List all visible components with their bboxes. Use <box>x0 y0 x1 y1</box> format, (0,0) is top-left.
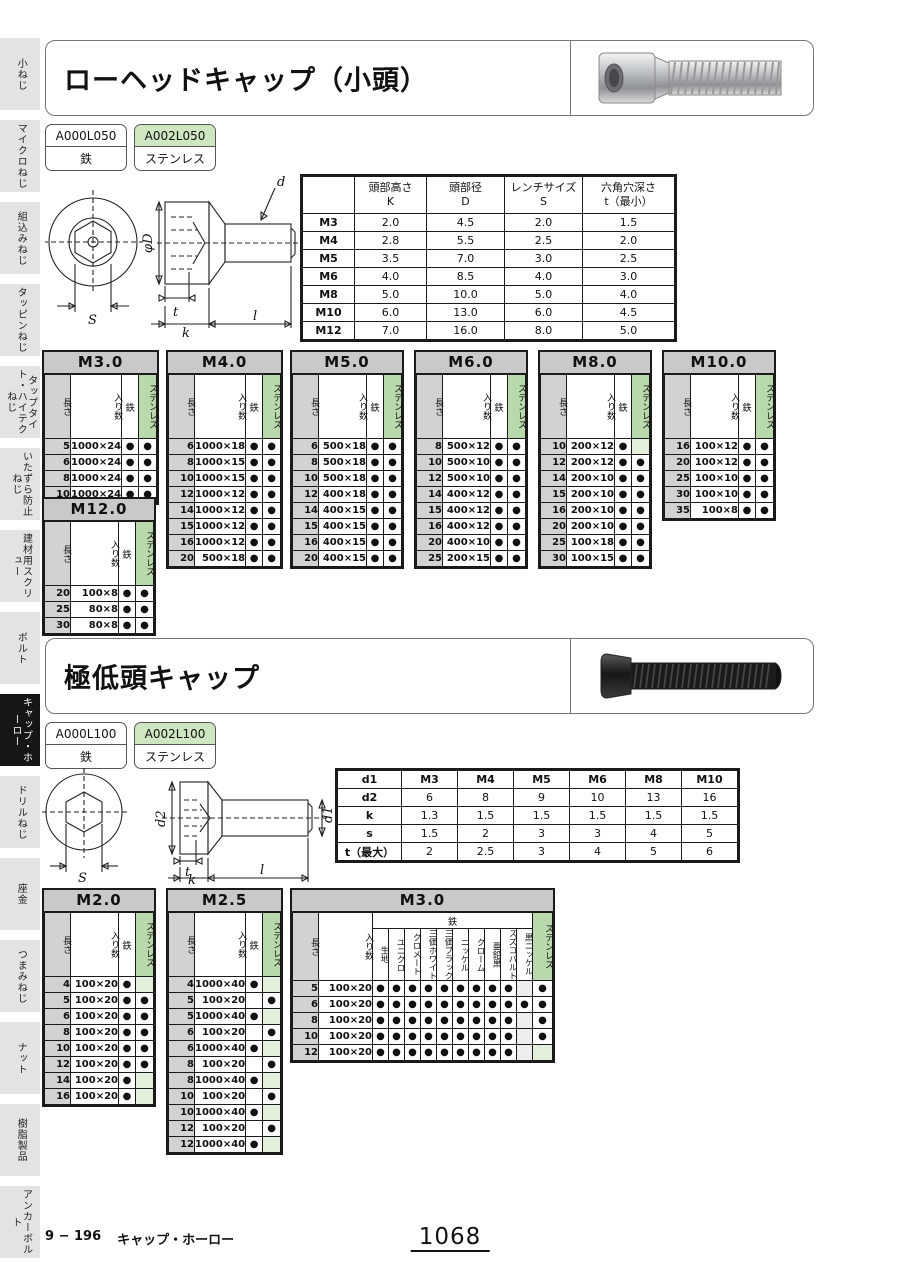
table-row: 12400×18●● <box>293 487 402 503</box>
stainless-availability-cell: ● <box>508 535 526 551</box>
table-row: 35100×8●● <box>665 503 774 519</box>
dim-cell: d1 <box>338 771 402 789</box>
iron-header: 鉄 <box>122 375 139 439</box>
size-table-m6: M6.0長さ入り数鉄ステンレス8500×12●●10500×10●●12500×… <box>414 350 528 569</box>
length-cell: 10 <box>293 1029 319 1045</box>
iron-availability-cell: ● <box>373 997 389 1013</box>
sidebar-item: いたずら防止ねじ <box>0 448 40 520</box>
qty-cell: 100×18 <box>567 535 615 551</box>
iron-availability-cell <box>246 1089 263 1105</box>
sidebar-item: マイクロねじ <box>0 120 40 192</box>
length-cell: 6 <box>169 439 195 455</box>
size-table-grid: 長さ入り数鉄ステンレス41000×40●5100×20●51000×40●610… <box>168 912 281 1153</box>
section2-title: 極低頭キャップ <box>64 657 260 696</box>
iron-availability-cell: ● <box>246 519 263 535</box>
dim-cell: M6 <box>303 268 355 286</box>
iron-finish-header: 生地 <box>373 929 389 981</box>
size-table-m4: M4.0長さ入り数鉄ステンレス61000×18●●81000×15●●10100… <box>166 350 283 569</box>
stainless-availability-cell: ● <box>508 487 526 503</box>
dim-cell: 2 <box>402 843 458 861</box>
iron-availability-cell: ● <box>389 981 405 997</box>
dim-cell: M8 <box>626 771 682 789</box>
dim-cell: 3 <box>514 825 570 843</box>
label-k: k <box>188 873 196 884</box>
size-header-row: 長さ入り数鉄ステンレス <box>293 375 402 439</box>
iron-availability-cell: ● <box>246 551 263 567</box>
dim-cell: s <box>338 825 402 843</box>
stainless-availability-cell: ● <box>263 535 281 551</box>
iron-availability-cell: ● <box>421 1029 437 1045</box>
material-label: ステンレス <box>135 147 215 170</box>
dimension-table-grid: d1M3M4M5M6M8M10d2689101316k1.31.51.51.51… <box>337 770 738 861</box>
iron-header: 鉄 <box>367 375 384 439</box>
table-row: 20100×8●● <box>45 586 154 602</box>
stainless-availability-cell: ● <box>508 439 526 455</box>
qty-cell: 1000×40 <box>195 1137 246 1153</box>
stainless-availability-cell: ● <box>508 519 526 535</box>
qty-cell: 200×15 <box>443 551 491 567</box>
iron-finish-header: 三価ホワイト <box>421 929 437 981</box>
iron-availability-cell: ● <box>119 586 136 602</box>
dim-row: M106.013.06.04.5 <box>303 304 675 322</box>
qty-cell: 100×10 <box>691 487 739 503</box>
qty-cell: 100×20 <box>319 1029 373 1045</box>
iron-availability-cell: ● <box>615 471 632 487</box>
qty-cell: 1000×24 <box>71 471 122 487</box>
section1-codes: A000L050 鉄 A002L050 ステンレス <box>45 124 216 171</box>
stainless-availability-cell: ● <box>508 455 526 471</box>
dim-cell: 3.0 <box>505 250 583 268</box>
stainless-availability-cell: ● <box>632 535 650 551</box>
sidebar-item-label: ナット <box>15 1042 26 1075</box>
label-t: t <box>173 305 179 320</box>
dim-cell: 10.0 <box>427 286 505 304</box>
qty-cell: 500×10 <box>443 471 491 487</box>
iron-availability-cell: ● <box>485 1045 501 1061</box>
iron-availability-cell: ● <box>491 455 508 471</box>
dim-row: d1M3M4M5M6M8M10 <box>338 771 738 789</box>
size-table-title: M2.0 <box>44 890 154 912</box>
qty-cell: 500×10 <box>443 455 491 471</box>
length-cell: 6 <box>293 439 319 455</box>
length-cell: 10 <box>169 1105 195 1121</box>
table-row: 12100×20● <box>169 1121 281 1137</box>
qty-cell: 100×20 <box>195 1057 246 1073</box>
qty-cell: 100×10 <box>691 471 739 487</box>
qty-cell: 400×15 <box>319 503 367 519</box>
stainless-availability-cell: ● <box>533 997 553 1013</box>
length-cell: 8 <box>293 1013 319 1029</box>
iron-availability-cell: ● <box>615 487 632 503</box>
table-row: 10100×20●● <box>45 1041 154 1057</box>
qty-header: 入り数 <box>195 375 246 439</box>
sidebar-item-label: 座金 <box>15 883 26 905</box>
dim-cell: 1.5 <box>682 807 738 825</box>
table-row: 30100×10●● <box>665 487 774 503</box>
iron-availability-cell: ● <box>485 997 501 1013</box>
sidebar-item: ナット <box>0 1022 40 1094</box>
section2-codes: A000L100 鉄 A002L100 ステンレス <box>45 722 216 769</box>
stainless-availability-cell: ● <box>136 1025 154 1041</box>
length-cell: 16 <box>45 1089 71 1105</box>
stainless-availability-cell: ● <box>139 439 157 455</box>
length-cell: 15 <box>293 519 319 535</box>
length-cell: 8 <box>45 1025 71 1041</box>
length-cell: 10 <box>169 471 195 487</box>
stainless-availability-cell <box>263 1041 281 1057</box>
stainless-availability-cell: ● <box>384 471 402 487</box>
section2-title-box: 極低頭キャップ <box>45 638 814 714</box>
table-row: 8100×20●●●●●●●●●● <box>293 1013 553 1029</box>
iron-availability-cell: ● <box>739 471 756 487</box>
label-l: l <box>260 863 264 878</box>
dim-header-cell: 六角穴深さt（最小） <box>583 177 675 214</box>
iron-header: 鉄 <box>491 375 508 439</box>
iron-availability-cell: ● <box>739 455 756 471</box>
table-row: 51000×40● <box>169 1009 281 1025</box>
iron-availability-cell: ● <box>501 1013 517 1029</box>
code-label: A002L050 <box>135 125 215 147</box>
sidebar-item: つまみねじ <box>0 940 40 1012</box>
dim-cell: M4 <box>303 232 355 250</box>
dim-cell: 4 <box>626 825 682 843</box>
iron-availability-cell: ● <box>517 997 533 1013</box>
length-cell: 14 <box>169 503 195 519</box>
length-cell: 6 <box>45 1009 71 1025</box>
iron-header: 鉄 <box>246 375 263 439</box>
size-header-row: 長さ入り数鉄ステンレス <box>293 913 553 929</box>
stainless-header: ステンレス <box>139 375 157 439</box>
stainless-availability-cell: ● <box>263 1121 281 1137</box>
stainless-availability-cell: ● <box>508 503 526 519</box>
stainless-header: ステンレス <box>533 913 553 981</box>
table-row: 6100×20● <box>169 1025 281 1041</box>
dim-row: M127.016.08.05.0 <box>303 322 675 340</box>
length-cell: 8 <box>417 439 443 455</box>
iron-availability-cell: ● <box>373 1045 389 1061</box>
label-k: k <box>182 326 190 338</box>
length-cell: 12 <box>169 487 195 503</box>
iron-availability-cell: ● <box>367 487 384 503</box>
qty-cell: 100×20 <box>71 1025 119 1041</box>
length-cell: 6 <box>169 1041 195 1057</box>
iron-availability-cell: ● <box>405 981 421 997</box>
qty-cell: 400×12 <box>443 503 491 519</box>
table-row: 16100×12●● <box>665 439 774 455</box>
size-table-title: M2.5 <box>168 890 281 912</box>
material-label: 鉄 <box>46 147 126 170</box>
iron-availability-cell: ● <box>367 471 384 487</box>
iron-availability-cell: ● <box>739 503 756 519</box>
size-table-m10: M10.0長さ入り数鉄ステンレス16100×12●●20100×12●●2510… <box>662 350 776 521</box>
iron-availability-cell: ● <box>485 981 501 997</box>
length-cell: 12 <box>169 1121 195 1137</box>
table-row: 16100×20● <box>45 1089 154 1105</box>
material-label: 鉄 <box>46 745 126 768</box>
length-cell: 5 <box>169 1009 195 1025</box>
qty-cell: 100×20 <box>71 1057 119 1073</box>
dim-cell: 5 <box>626 843 682 861</box>
iron-availability-cell: ● <box>615 439 632 455</box>
iron-availability-cell: ● <box>119 1057 136 1073</box>
stainless-availability-cell: ● <box>263 487 281 503</box>
table-row: 10100×20● <box>169 1089 281 1105</box>
sidebar-item-label: キャップ・ホーロー <box>10 694 31 766</box>
qty-cell: 100×20 <box>71 993 119 1009</box>
qty-cell: 100×20 <box>195 1025 246 1041</box>
stainless-availability-cell: ● <box>139 471 157 487</box>
table-row: 12100×20●● <box>45 1057 154 1073</box>
iron-availability-cell: ● <box>367 535 384 551</box>
iron-availability-cell: ● <box>615 455 632 471</box>
length-cell: 14 <box>293 503 319 519</box>
sidebar-item-label: 小ねじ <box>15 58 26 91</box>
stainless-availability-cell <box>263 1105 281 1121</box>
length-cell: 16 <box>293 535 319 551</box>
length-cell: 20 <box>45 586 71 602</box>
table-row: 14400×15●● <box>293 503 402 519</box>
stainless-availability-cell: ● <box>136 618 154 634</box>
stainless-availability-cell: ● <box>139 455 157 471</box>
iron-availability-cell: ● <box>367 455 384 471</box>
dim-cell: 6 <box>682 843 738 861</box>
iron-availability-cell: ● <box>122 455 139 471</box>
iron-availability-cell: ● <box>246 977 263 993</box>
length-header: 長さ <box>417 375 443 439</box>
size-table-m5: M5.0長さ入り数鉄ステンレス6500×18●●8500×18●●10500×1… <box>290 350 404 569</box>
stainless-availability-cell: ● <box>136 586 154 602</box>
table-row: 121000×12●● <box>169 487 281 503</box>
dim-cell: 3 <box>570 825 626 843</box>
length-cell: 14 <box>541 471 567 487</box>
table-row: 20400×10●● <box>417 535 526 551</box>
iron-availability-cell: ● <box>389 1045 405 1061</box>
size-header-row: 長さ入り数鉄ステンレス <box>665 375 774 439</box>
length-cell: 14 <box>45 1073 71 1089</box>
table-row: 161000×12●● <box>169 535 281 551</box>
iron-availability-cell: ● <box>367 551 384 567</box>
iron-availability-cell <box>517 1045 533 1061</box>
size-table-title: M8.0 <box>540 352 650 374</box>
iron-availability-cell: ● <box>246 1073 263 1089</box>
dim-row: t（最大）22.53456 <box>338 843 738 861</box>
table-row: 10200×12● <box>541 439 650 455</box>
stainless-availability-cell: ● <box>756 487 774 503</box>
qty-cell: 400×18 <box>319 487 367 503</box>
table-row: 20100×12●● <box>665 455 774 471</box>
iron-availability-cell: ● <box>469 981 485 997</box>
sidebar-item-label: 樹脂製品 <box>15 1118 26 1162</box>
table-row: 61000×40● <box>169 1041 281 1057</box>
length-cell: 4 <box>169 977 195 993</box>
dim-row: M42.85.52.52.0 <box>303 232 675 250</box>
product-photo-black-cap-screw <box>597 650 787 702</box>
label-phiD: φD <box>141 233 156 253</box>
size-table-grid: 長さ入り数鉄ステンレス16100×12●●20100×12●●25100×10●… <box>664 374 774 519</box>
code-label: A000L100 <box>46 723 126 745</box>
stainless-availability-cell <box>533 1045 553 1061</box>
iron-availability-cell: ● <box>453 1013 469 1029</box>
dim-header-cell <box>303 177 355 214</box>
stainless-header: ステンレス <box>632 375 650 439</box>
table-row: 12100×20●●●●●●●●● <box>293 1045 553 1061</box>
qty-header: 入り数 <box>567 375 615 439</box>
table-row: 14200×10●● <box>541 471 650 487</box>
iron-availability-cell: ● <box>246 471 263 487</box>
iron-availability-cell: ● <box>119 1073 136 1089</box>
qty-cell: 1000×40 <box>195 1009 246 1025</box>
qty-cell: 400×15 <box>319 519 367 535</box>
stainless-availability-cell: ● <box>384 503 402 519</box>
iron-availability-cell <box>246 1025 263 1041</box>
length-cell: 16 <box>417 519 443 535</box>
table-row: 20400×15●● <box>293 551 402 567</box>
qty-cell: 400×12 <box>443 519 491 535</box>
length-cell: 14 <box>417 487 443 503</box>
dim-cell: 10 <box>570 789 626 807</box>
length-cell: 30 <box>45 618 71 634</box>
length-cell: 4 <box>45 977 71 993</box>
dim-cell: 4.0 <box>583 286 675 304</box>
iron-availability-cell: ● <box>437 1029 453 1045</box>
iron-availability-cell: ● <box>437 1045 453 1061</box>
length-cell: 6 <box>169 1025 195 1041</box>
stainless-availability-cell <box>263 1009 281 1025</box>
iron-availability-cell: ● <box>453 1045 469 1061</box>
iron-availability-cell: ● <box>491 535 508 551</box>
table-row: 6100×20●● <box>45 1009 154 1025</box>
dim-cell: 6.0 <box>505 304 583 322</box>
length-cell: 16 <box>665 439 691 455</box>
stainless-availability-cell: ● <box>136 1057 154 1073</box>
table-row: 3080×8●● <box>45 618 154 634</box>
length-cell: 25 <box>665 471 691 487</box>
table-row: 25100×18●● <box>541 535 650 551</box>
qty-cell: 100×20 <box>319 981 373 997</box>
table-row: 8500×12●● <box>417 439 526 455</box>
iron-availability-cell: ● <box>469 997 485 1013</box>
stainless-availability-cell: ● <box>632 487 650 503</box>
table-row: 16200×10●● <box>541 503 650 519</box>
iron-availability-cell: ● <box>122 439 139 455</box>
length-cell: 15 <box>541 487 567 503</box>
label-s: S <box>88 313 97 328</box>
iron-availability-cell: ● <box>615 519 632 535</box>
iron-availability-cell: ● <box>469 1013 485 1029</box>
length-header: 長さ <box>169 375 195 439</box>
dim-row: M32.04.52.01.5 <box>303 214 675 232</box>
size-table-title: M6.0 <box>416 352 526 374</box>
qty-cell: 100×20 <box>71 1041 119 1057</box>
qty-cell: 80×8 <box>71 618 119 634</box>
code-chip-stainless: A002L050 ステンレス <box>134 124 216 171</box>
iron-availability-cell: ● <box>501 1045 517 1061</box>
iron-availability-cell: ● <box>485 1013 501 1029</box>
label-d1: d1 <box>321 806 332 823</box>
length-cell: 10 <box>45 1041 71 1057</box>
qty-cell: 100×20 <box>71 1009 119 1025</box>
sidebar-item-label: ドリルねじ <box>15 785 26 840</box>
dim-cell: M5 <box>514 771 570 789</box>
dim-cell: M6 <box>570 771 626 789</box>
stainless-header: ステンレス <box>136 522 154 586</box>
length-cell: 6 <box>293 997 319 1013</box>
dim-cell: 1.5 <box>514 807 570 825</box>
table-row: 6100×20●●●●●●●●●●● <box>293 997 553 1013</box>
size-header-row: 長さ入り数鉄ステンレス <box>541 375 650 439</box>
iron-availability-cell: ● <box>119 1041 136 1057</box>
iron-availability-cell: ● <box>246 535 263 551</box>
dim-cell: 8.5 <box>427 268 505 286</box>
qty-cell: 1000×40 <box>195 1105 246 1121</box>
stainless-header: ステンレス <box>384 375 402 439</box>
stainless-availability-cell: ● <box>632 519 650 535</box>
iron-availability-cell: ● <box>405 997 421 1013</box>
length-cell: 16 <box>541 503 567 519</box>
length-cell: 5 <box>45 439 71 455</box>
iron-availability-cell: ● <box>373 1013 389 1029</box>
length-cell: 10 <box>417 455 443 471</box>
iron-availability-cell <box>517 981 533 997</box>
table-row: 8500×18●● <box>293 455 402 471</box>
label-l: l <box>253 309 257 324</box>
qty-cell: 100×20 <box>319 1013 373 1029</box>
iron-availability-cell: ● <box>739 439 756 455</box>
iron-header: 鉄 <box>739 375 756 439</box>
iron-availability-cell: ● <box>437 981 453 997</box>
qty-cell: 100×20 <box>195 1089 246 1105</box>
length-cell: 20 <box>665 455 691 471</box>
qty-cell: 200×10 <box>567 519 615 535</box>
length-cell: 10 <box>293 471 319 487</box>
iron-finish-header: クロメート <box>405 929 421 981</box>
sidebar-item-label: ボルト <box>15 632 26 665</box>
dim-cell: M8 <box>303 286 355 304</box>
size-table-title: M12.0 <box>44 499 154 521</box>
sidebar-item: ドリルねじ <box>0 776 40 848</box>
length-cell: 6 <box>45 455 71 471</box>
length-header: 長さ <box>45 913 71 977</box>
iron-availability-cell: ● <box>491 487 508 503</box>
qty-cell: 100×20 <box>71 1089 119 1105</box>
table-row: 101000×15●● <box>169 471 281 487</box>
iron-availability-cell: ● <box>485 1029 501 1045</box>
qty-cell: 1000×12 <box>195 535 246 551</box>
stainless-availability-cell <box>136 1073 154 1089</box>
iron-availability-cell: ● <box>501 1029 517 1045</box>
stainless-availability-cell: ● <box>632 455 650 471</box>
dim-cell: 4.0 <box>355 268 427 286</box>
table-row: 12200×12●● <box>541 455 650 471</box>
table-row: 51000×24●● <box>45 439 157 455</box>
length-cell: 15 <box>417 503 443 519</box>
dim-cell: 5.5 <box>427 232 505 250</box>
iron-availability-cell: ● <box>373 981 389 997</box>
sidebar-item: ボルト <box>0 612 40 684</box>
sidebar-item: 樹脂製品 <box>0 1104 40 1176</box>
iron-availability-cell: ● <box>119 1009 136 1025</box>
length-cell: 12 <box>541 455 567 471</box>
table-row: 101000×40● <box>169 1105 281 1121</box>
stainless-availability-cell <box>263 977 281 993</box>
size-table-grid: 長さ入り数鉄ステンレス10200×12●12200×12●●14200×10●●… <box>540 374 650 567</box>
stainless-availability-cell <box>136 977 154 993</box>
section2-dimension-table: d1M3M4M5M6M8M10d2689101316k1.31.51.51.51… <box>335 768 740 863</box>
size-header-row: 長さ入り数鉄ステンレス <box>417 375 526 439</box>
dim-row: M64.08.54.03.0 <box>303 268 675 286</box>
table-row: 81000×24●● <box>45 471 157 487</box>
length-cell: 20 <box>169 551 195 567</box>
